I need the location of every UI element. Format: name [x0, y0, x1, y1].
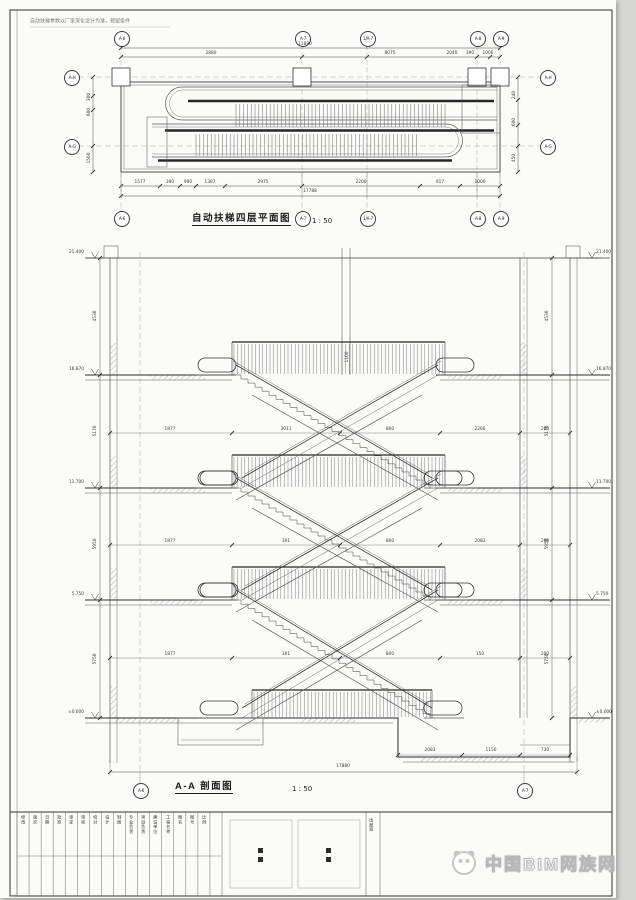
- dim-label: 1577: [135, 181, 146, 185]
- dim-label: 800: [386, 428, 394, 432]
- section-title: A-A 剖面图: [175, 782, 233, 794]
- dim-label: 200: [541, 653, 549, 657]
- dim-label: 2975: [258, 181, 269, 185]
- sheet-mark: 4#: [11, 893, 15, 898]
- titleblock-label: 比例: [202, 815, 206, 824]
- grid-bubble: A-7: [517, 783, 533, 799]
- titleblock-label: 专业负责: [129, 815, 133, 834]
- dim-label: 1387: [205, 181, 216, 185]
- panda-logo-icon: [450, 848, 478, 876]
- dim-label: 3011: [281, 428, 292, 432]
- dim-label: 2880: [206, 52, 217, 56]
- dim-label: 5170: [94, 426, 98, 437]
- dim-label: 300: [88, 93, 92, 101]
- titleblock-label: 图名: [178, 815, 182, 824]
- dim-label: 17880: [336, 765, 350, 769]
- grid-bubble: 1/A-7: [360, 31, 376, 47]
- dim-label: 2260: [475, 428, 486, 432]
- titleblock-label: 校对: [93, 815, 97, 824]
- grid-bubble: A-H: [540, 70, 556, 86]
- dim-label: 11880: [298, 43, 312, 47]
- titleblock-label: 工程名称: [166, 815, 170, 834]
- titleblock-label: 审核: [81, 815, 85, 824]
- sheet-top-note: 自动扶梯参数以厂家深化设计为准，预留条件: [30, 20, 130, 25]
- grid-bubble: A-6: [114, 31, 130, 47]
- elevation-label: ±0.000: [596, 711, 612, 715]
- dim-label: 600: [513, 118, 517, 126]
- dim-label: 5750: [94, 654, 98, 665]
- dim-label: 5950: [94, 539, 98, 550]
- dim-label: 1877: [165, 428, 176, 432]
- dim-label: 200: [541, 428, 549, 432]
- watermark: 中国BIM网族网: [450, 848, 617, 876]
- titleblock-label: 版次: [33, 815, 37, 824]
- plan-title: 自动扶梯四层平面图: [192, 214, 291, 226]
- elevation-label: 11.700: [596, 481, 611, 485]
- grid-bubble: A-9: [493, 31, 509, 47]
- grid-bubble: A-8: [470, 31, 486, 47]
- dim-label: 390: [166, 181, 174, 185]
- titleblock-label: 图号: [190, 815, 194, 824]
- dim-label: 4530: [94, 311, 98, 322]
- drawing-photo: { "sheet": { "top_note": "自动扶梯参数以厂家深化设计为…: [0, 0, 636, 900]
- grid-bubble: A-G: [64, 139, 80, 155]
- dim-label: 2083: [475, 540, 486, 544]
- dim-label: 4530: [546, 311, 550, 322]
- dim-label: 1000: [475, 181, 486, 185]
- grid-bubble: A-6: [114, 211, 130, 227]
- dim-label: 917: [436, 181, 444, 185]
- dim-label: 800: [386, 540, 394, 544]
- titleblock-label: 设计: [105, 815, 109, 824]
- dim-label: 1000: [483, 52, 494, 56]
- elevation-label: 11.700: [69, 481, 84, 485]
- titleblock-label: 建设单位: [153, 815, 157, 834]
- elevation-label: 16.870: [596, 368, 611, 372]
- dim-label: 990: [184, 181, 192, 185]
- dim-label: 1100: [346, 352, 350, 363]
- titleblock-label: 批准: [57, 815, 61, 824]
- dim-label: 240: [513, 91, 517, 99]
- grid-bubble: A-8: [470, 211, 486, 227]
- titleblock-label: 日期: [45, 815, 49, 824]
- watermark-text: 中国BIM网族网: [485, 850, 617, 875]
- dim-label: 301: [282, 540, 290, 544]
- grid-bubble: A-9: [493, 211, 509, 227]
- dim-label: 2040: [447, 52, 458, 56]
- plan-scale: 1 : 50: [312, 217, 332, 225]
- cad-linework: [0, 0, 636, 900]
- grid-bubble: A-G: [540, 139, 556, 155]
- dim-label: 1150: [486, 749, 497, 753]
- dim-label: 2200: [356, 181, 367, 185]
- dim-label: 17788: [303, 190, 317, 194]
- dim-label: 1877: [165, 653, 176, 657]
- titleblock-label: 制图: [117, 815, 121, 824]
- titleblock-label: 项目负责: [141, 815, 145, 834]
- grid-bubble: A-7: [295, 211, 311, 227]
- elevation-label: 5.750: [72, 593, 84, 597]
- elevation-label: 21.400: [69, 251, 84, 255]
- dim-label: 800: [386, 653, 394, 657]
- grid-bubble: A-H: [64, 70, 80, 86]
- grid-bubble: A-6: [133, 783, 149, 799]
- dim-label: 1560: [88, 153, 92, 164]
- elevation-label: 5.750: [596, 593, 608, 597]
- dim-label: 1877: [165, 540, 176, 544]
- titleblock-label: 修改: [21, 815, 25, 824]
- dim-label: 600: [88, 108, 92, 116]
- titleblock-label: 审定: [69, 815, 73, 824]
- elevation-label: 21.400: [596, 251, 611, 255]
- elevation-label: 16.870: [69, 368, 84, 372]
- dim-label: 2083: [425, 749, 436, 753]
- dim-label: 730: [541, 749, 549, 753]
- dim-label: 150: [476, 653, 484, 657]
- section-scale: 1 : 50: [292, 785, 312, 793]
- titleblock-stamp-note: 出图章: [369, 818, 373, 832]
- dim-label: 390: [466, 52, 474, 56]
- grid-bubble: 1/A-7: [360, 211, 376, 227]
- dim-label: 301: [282, 653, 290, 657]
- elevation-label: ±0.000: [68, 711, 84, 715]
- dim-label: 200: [541, 540, 549, 544]
- dim-label: 8075: [385, 52, 396, 56]
- dim-label: 450: [513, 154, 517, 162]
